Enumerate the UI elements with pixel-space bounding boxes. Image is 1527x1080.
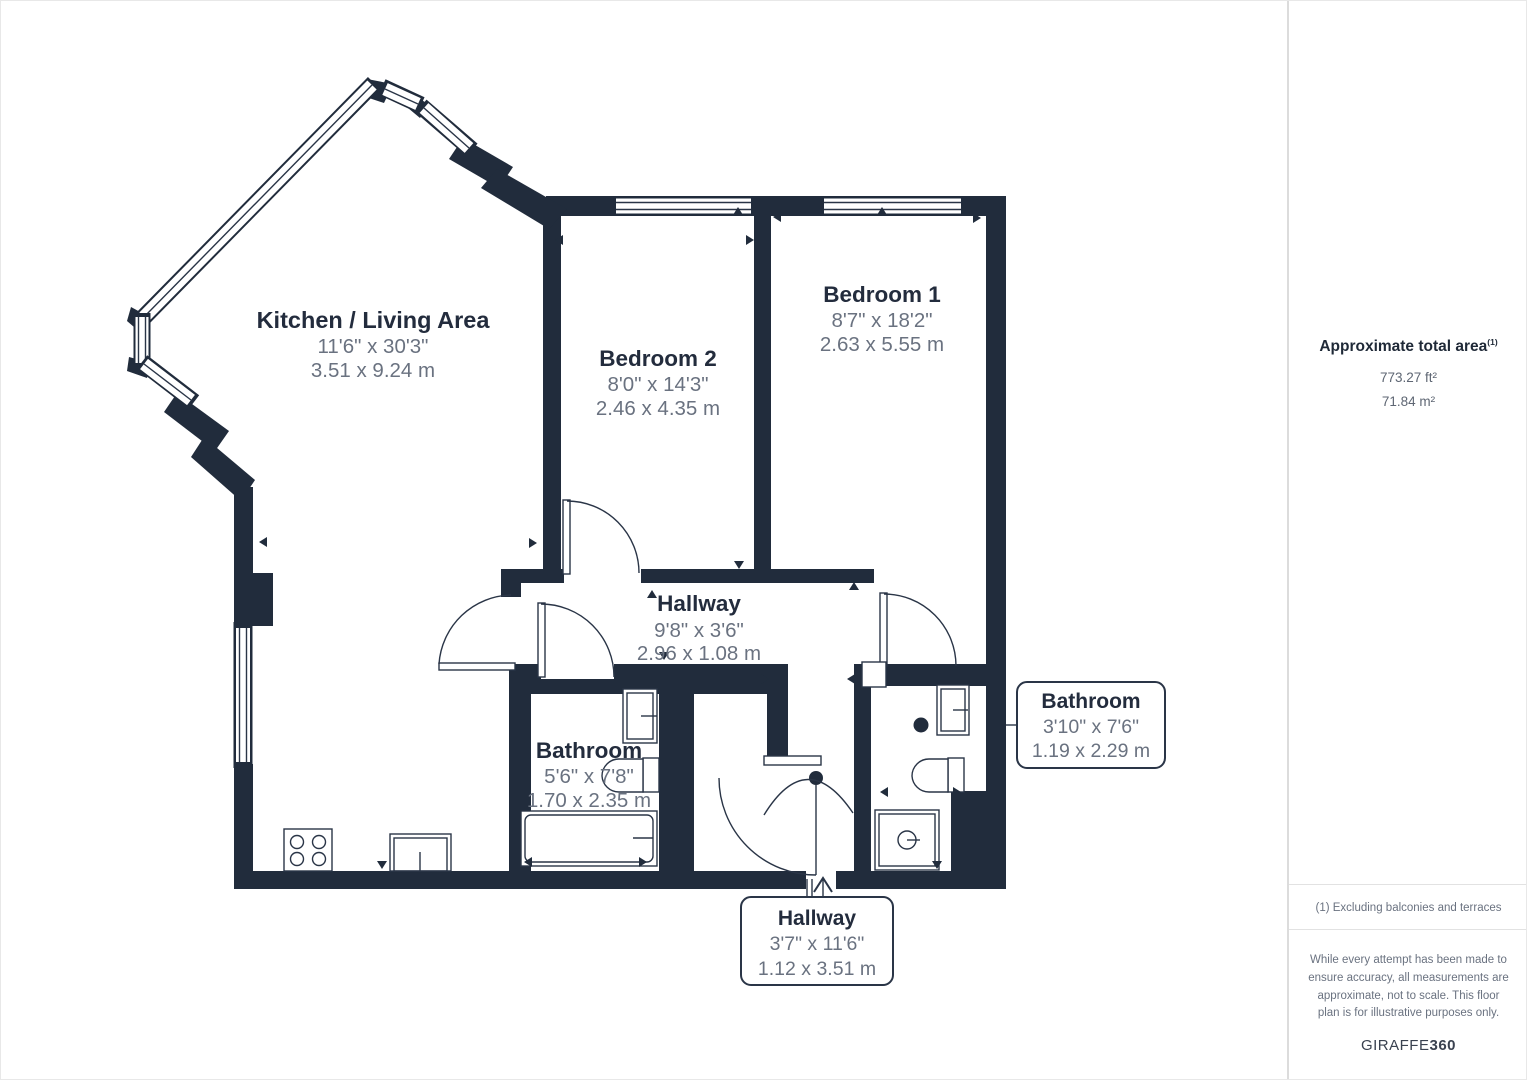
kitchen-door-leaf xyxy=(439,663,515,670)
disclaimer-section: While every attempt has been made to ens… xyxy=(1289,929,1527,1080)
disclaimer-text: While every attempt has been made to ens… xyxy=(1307,952,1511,1023)
svg-text:3'7" x 11'6": 3'7" x 11'6" xyxy=(770,933,865,955)
svg-text:1.19 x 2.29 m: 1.19 x 2.29 m xyxy=(1032,740,1150,762)
sidebar: Approximate total area(1) 773.27 ft² 71.… xyxy=(1287,1,1527,1080)
room-label-bedroom1: Bedroom 1 xyxy=(823,282,941,307)
bedroom2-door-leaf xyxy=(563,500,570,574)
svg-text:5'6" x 7'8": 5'6" x 7'8" xyxy=(544,765,634,788)
giraffe360-logo: GIRAFFE360 xyxy=(1289,1037,1527,1054)
room-label-bedroom2: Bedroom 2 xyxy=(599,346,717,371)
svg-text:2.46 x 4.35 m: 2.46 x 4.35 m xyxy=(596,397,720,420)
room-label-hallway: Hallway xyxy=(657,591,741,616)
room-labels: Kitchen / Living Area 11'6" x 30'3" 3.51… xyxy=(257,282,945,812)
bedroom1-door-leaf xyxy=(880,593,887,666)
total-area-title: Approximate total area(1) xyxy=(1289,337,1527,356)
svg-text:2.96 x 1.08 m: 2.96 x 1.08 m xyxy=(637,642,761,665)
total-area-m: 71.84 m² xyxy=(1289,394,1527,409)
bathroom2-door-panel xyxy=(862,662,886,687)
room-label-bathroom1: Bathroom xyxy=(536,738,642,763)
svg-text:3.51 x 9.24 m: 3.51 x 9.24 m xyxy=(311,359,435,382)
bathtub-icon xyxy=(521,811,657,866)
room-label-bathroom2: Bathroom xyxy=(1041,690,1140,713)
stove-icon xyxy=(284,829,332,871)
svg-text:8'0" x 14'3": 8'0" x 14'3" xyxy=(607,373,708,396)
bathroom-door-leaf xyxy=(538,603,545,677)
total-area-ft: 773.27 ft² xyxy=(1289,370,1527,385)
svg-text:11'6" x 30'3": 11'6" x 30'3" xyxy=(318,335,429,358)
svg-text:2.63 x 5.55 m: 2.63 x 5.55 m xyxy=(820,333,944,356)
radiator-dot-icon xyxy=(914,718,929,733)
sink-icon xyxy=(623,689,657,743)
svg-text:9'8" x 3'6": 9'8" x 3'6" xyxy=(654,619,744,642)
room-label-hallway2: Hallway xyxy=(778,907,857,930)
sink2-icon xyxy=(937,685,969,735)
room-label-kitchen: Kitchen / Living Area xyxy=(257,307,491,333)
svg-text:1.12 x 3.51 m: 1.12 x 3.51 m xyxy=(758,958,876,980)
svg-text:1.70 x 2.35 m: 1.70 x 2.35 m xyxy=(527,789,651,812)
footnote-text: (1) Excluding balconies and terraces xyxy=(1289,884,1527,930)
threshold xyxy=(764,756,821,765)
total-area-block: Approximate total area(1) 773.27 ft² 71.… xyxy=(1289,337,1527,409)
kitchen-appliance-icon xyxy=(390,834,451,871)
footnote-marker: (1) xyxy=(1487,337,1497,347)
toilet2-icon xyxy=(912,758,964,792)
svg-text:3'10" x 7'6": 3'10" x 7'6" xyxy=(1043,716,1139,738)
shower-icon xyxy=(875,810,939,870)
floorplan-page: Kitchen / Living Area 11'6" x 30'3" 3.51… xyxy=(0,0,1527,1080)
svg-text:8'7" x 18'2": 8'7" x 18'2" xyxy=(831,309,932,332)
